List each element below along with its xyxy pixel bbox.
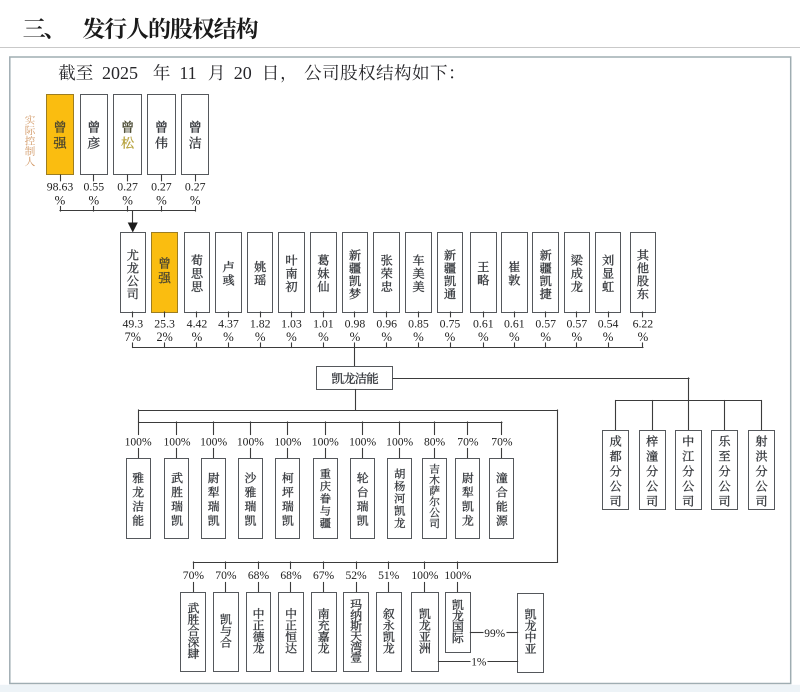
svg-text:%: %	[381, 330, 392, 344]
svg-text:1.03: 1.03	[281, 316, 302, 330]
svg-text:0.75: 0.75	[440, 316, 461, 330]
svg-text:100%: 100%	[274, 436, 301, 449]
svg-text:2%: 2%	[156, 330, 172, 344]
svg-text:%: %	[603, 330, 614, 344]
svg-text:%: %	[540, 330, 551, 344]
svg-text:100%: 100%	[411, 569, 438, 582]
svg-text:52%: 52%	[345, 569, 367, 582]
svg-text:98.63: 98.63	[47, 180, 74, 194]
svg-text:%: %	[190, 194, 201, 208]
svg-text:1.82: 1.82	[250, 316, 271, 330]
svg-text:100%: 100%	[444, 569, 471, 582]
svg-text:1%: 1%	[471, 657, 487, 669]
svg-text:68%: 68%	[248, 569, 270, 582]
svg-text:%: %	[350, 330, 361, 344]
svg-text:1.01: 1.01	[313, 316, 334, 330]
svg-text:100%: 100%	[125, 436, 152, 449]
svg-text:0.98: 0.98	[345, 316, 366, 330]
svg-text:0.61: 0.61	[473, 316, 494, 330]
svg-text:0.55: 0.55	[83, 180, 104, 194]
svg-text:7%: 7%	[125, 330, 141, 344]
svg-text:0.57: 0.57	[566, 316, 587, 330]
svg-text:80%: 80%	[424, 436, 446, 449]
svg-text:%: %	[223, 330, 234, 344]
svg-text:100%: 100%	[312, 436, 339, 449]
svg-text:70%: 70%	[491, 436, 513, 449]
svg-text:70%: 70%	[457, 436, 479, 449]
svg-text:25.3: 25.3	[154, 316, 175, 330]
svg-text:0.54: 0.54	[598, 316, 619, 330]
svg-text:%: %	[122, 194, 133, 208]
svg-text:100%: 100%	[163, 436, 190, 449]
svg-text:99%: 99%	[484, 628, 505, 640]
svg-text:4.37: 4.37	[218, 316, 239, 330]
svg-text:%: %	[445, 330, 456, 344]
svg-text:100%: 100%	[237, 436, 264, 449]
svg-text:%: %	[478, 330, 489, 344]
svg-text:%: %	[638, 330, 649, 344]
svg-text:0.85: 0.85	[408, 316, 429, 330]
svg-text:51%: 51%	[378, 569, 400, 582]
svg-text:%: %	[509, 330, 520, 344]
svg-text:100%: 100%	[200, 436, 227, 449]
svg-text:%: %	[413, 330, 424, 344]
svg-text:0.27: 0.27	[185, 180, 206, 194]
svg-text:70%: 70%	[215, 569, 237, 582]
svg-text:11: 11	[179, 63, 196, 83]
svg-text:6.22: 6.22	[633, 316, 654, 330]
svg-text:%: %	[88, 194, 99, 208]
svg-text:%: %	[286, 330, 297, 344]
svg-text:68%: 68%	[280, 569, 302, 582]
svg-text:20: 20	[234, 63, 252, 83]
svg-text:%: %	[571, 330, 582, 344]
svg-text:2025: 2025	[102, 63, 138, 83]
svg-text:0.57: 0.57	[535, 316, 556, 330]
svg-text:100%: 100%	[386, 436, 413, 449]
svg-text:%: %	[318, 330, 329, 344]
svg-text:%: %	[255, 330, 266, 344]
svg-text:0.61: 0.61	[504, 316, 525, 330]
svg-text:100%: 100%	[349, 436, 376, 449]
svg-text:4.42: 4.42	[187, 316, 208, 330]
svg-text:70%: 70%	[183, 569, 205, 582]
svg-text:%: %	[156, 194, 167, 208]
svg-text:67%: 67%	[313, 569, 335, 582]
svg-text:%: %	[55, 194, 66, 208]
svg-text:0.96: 0.96	[376, 316, 397, 330]
svg-text:%: %	[192, 330, 203, 344]
svg-text:0.27: 0.27	[117, 180, 138, 194]
svg-text:49.3: 49.3	[122, 316, 143, 330]
svg-text:0.27: 0.27	[151, 180, 172, 194]
